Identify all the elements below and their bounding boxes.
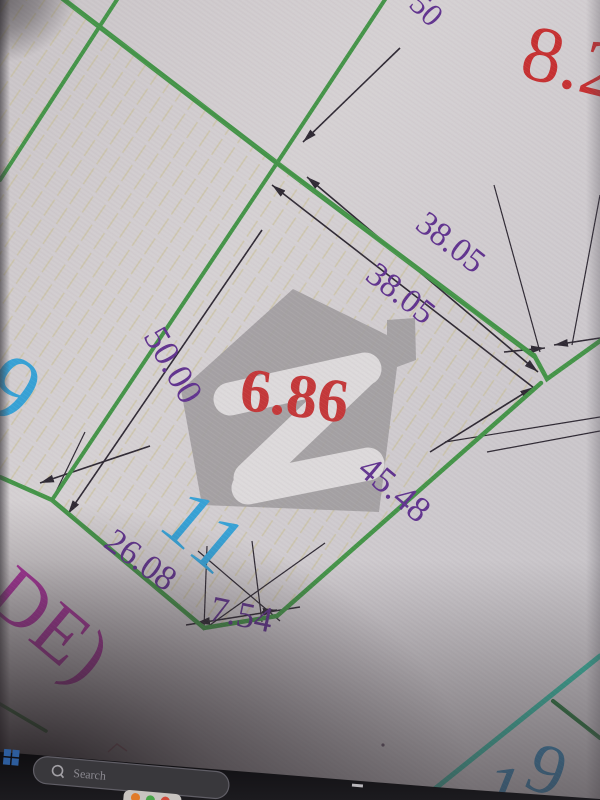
svg-text:Search: Search [73, 766, 107, 783]
